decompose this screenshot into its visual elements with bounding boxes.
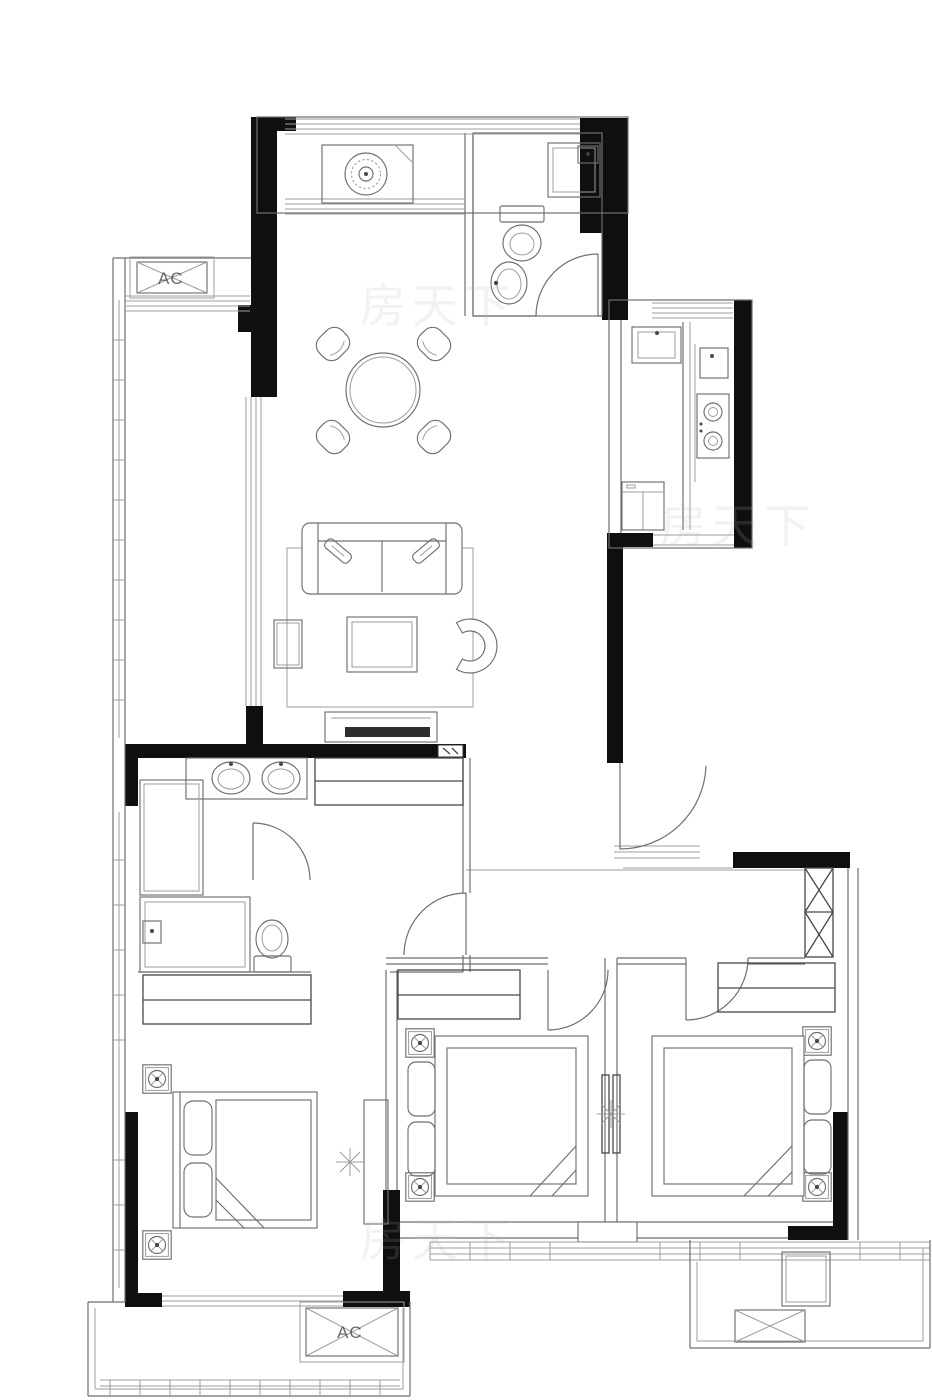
tv-icon xyxy=(345,727,430,737)
coffee-table-icon xyxy=(347,617,417,672)
hall-floor-lines xyxy=(466,868,805,870)
balcony-sliding-door xyxy=(285,199,465,214)
dining-table-icon xyxy=(346,353,420,427)
sofa-icon xyxy=(302,523,462,594)
guest-bath-door-swing-icon xyxy=(536,254,598,316)
pillow-icon xyxy=(408,1122,435,1176)
side-table-icon xyxy=(274,620,302,668)
bed2-bed3-divider xyxy=(605,958,617,1222)
dining-chair-icon xyxy=(312,416,354,458)
bedroom-3 xyxy=(652,1027,831,1201)
north-window-band xyxy=(285,119,580,134)
pillow-icon xyxy=(804,1060,831,1114)
doors xyxy=(253,254,748,1030)
dining-table-inner xyxy=(350,357,416,423)
counter-edge-2 xyxy=(690,322,695,530)
washing-machine-icon xyxy=(322,145,413,203)
toilet-icon xyxy=(254,920,291,972)
double-vanity-icon xyxy=(186,758,307,799)
master-bathroom xyxy=(140,758,307,972)
ac-platform-icon xyxy=(735,1310,805,1342)
entry-door-swing-icon xyxy=(620,763,706,849)
double-bed-icon xyxy=(173,1092,317,1228)
bedroom2-door-swing-icon xyxy=(548,970,608,1030)
east-exterior-wall xyxy=(848,868,858,1240)
floor-plan-canvas: AC AC 房天下 房天下 房天下 xyxy=(0,0,932,1400)
south-balcony-shell xyxy=(88,1302,410,1396)
ac-platform-icon: AC xyxy=(300,1302,404,1362)
double-bed-icon xyxy=(408,1036,588,1196)
armchair-icon xyxy=(457,619,497,673)
junction-box xyxy=(438,745,463,757)
bedroom3-door-swing-icon xyxy=(686,958,748,1020)
svg-text:房天下: 房天下 xyxy=(360,1214,516,1266)
refrigerator-icon xyxy=(622,482,664,530)
svg-text:房天下: 房天下 xyxy=(360,280,516,332)
bedroom2-wardrobe-hatch-icon xyxy=(398,970,520,1019)
svg-text:房天下: 房天下 xyxy=(660,500,816,552)
double-bed-icon xyxy=(652,1036,831,1196)
bedroom3-wardrobe-hatch-icon xyxy=(718,963,835,1012)
dining-area xyxy=(312,323,455,458)
ac-platform-icon: AC xyxy=(130,257,214,298)
living-balcony-sliding xyxy=(246,397,261,706)
shower-icon xyxy=(140,897,250,972)
pillow-icon xyxy=(804,1120,831,1174)
partition-sparkle-icon xyxy=(597,1100,625,1128)
kitchen-window-band xyxy=(652,303,733,318)
gas-stove-icon xyxy=(697,394,729,458)
bath-cabinet xyxy=(140,780,203,895)
living-area xyxy=(274,523,497,757)
dining-chair-icon xyxy=(413,416,455,458)
kitchen xyxy=(622,322,729,530)
floor-plan: AC AC 房天下 房天下 房天下 xyxy=(0,0,932,1400)
toilet-icon xyxy=(500,206,544,261)
ac-label: AC xyxy=(158,269,184,288)
duct-shaft-icon xyxy=(805,868,833,957)
south-balcony-glazing xyxy=(95,1308,403,1396)
master-bath-door-swing-icon xyxy=(253,823,310,880)
window-pier xyxy=(578,1222,637,1242)
corridor-wardrobe-hatch-icon xyxy=(315,758,463,805)
bed1-balcony-sliding xyxy=(162,1296,343,1306)
tv-console-icon xyxy=(325,712,437,742)
entry-threshold xyxy=(614,846,700,858)
kitchen-sink-icon xyxy=(632,327,681,363)
bedroom-2 xyxy=(406,1029,588,1201)
water-heater-icon xyxy=(700,348,728,378)
master-bedroom xyxy=(143,1065,317,1259)
dining-chair-icon xyxy=(312,323,354,365)
suite-door-swing-icon xyxy=(404,893,466,955)
north-balcony xyxy=(322,145,413,203)
ac-label: AC xyxy=(337,1323,363,1342)
pillow-icon xyxy=(408,1062,435,1116)
bedroom1-wardrobe-hatch-icon xyxy=(143,975,311,1024)
service-ledge-inner xyxy=(697,1248,923,1341)
partition-sparkle-icon xyxy=(336,1148,364,1176)
